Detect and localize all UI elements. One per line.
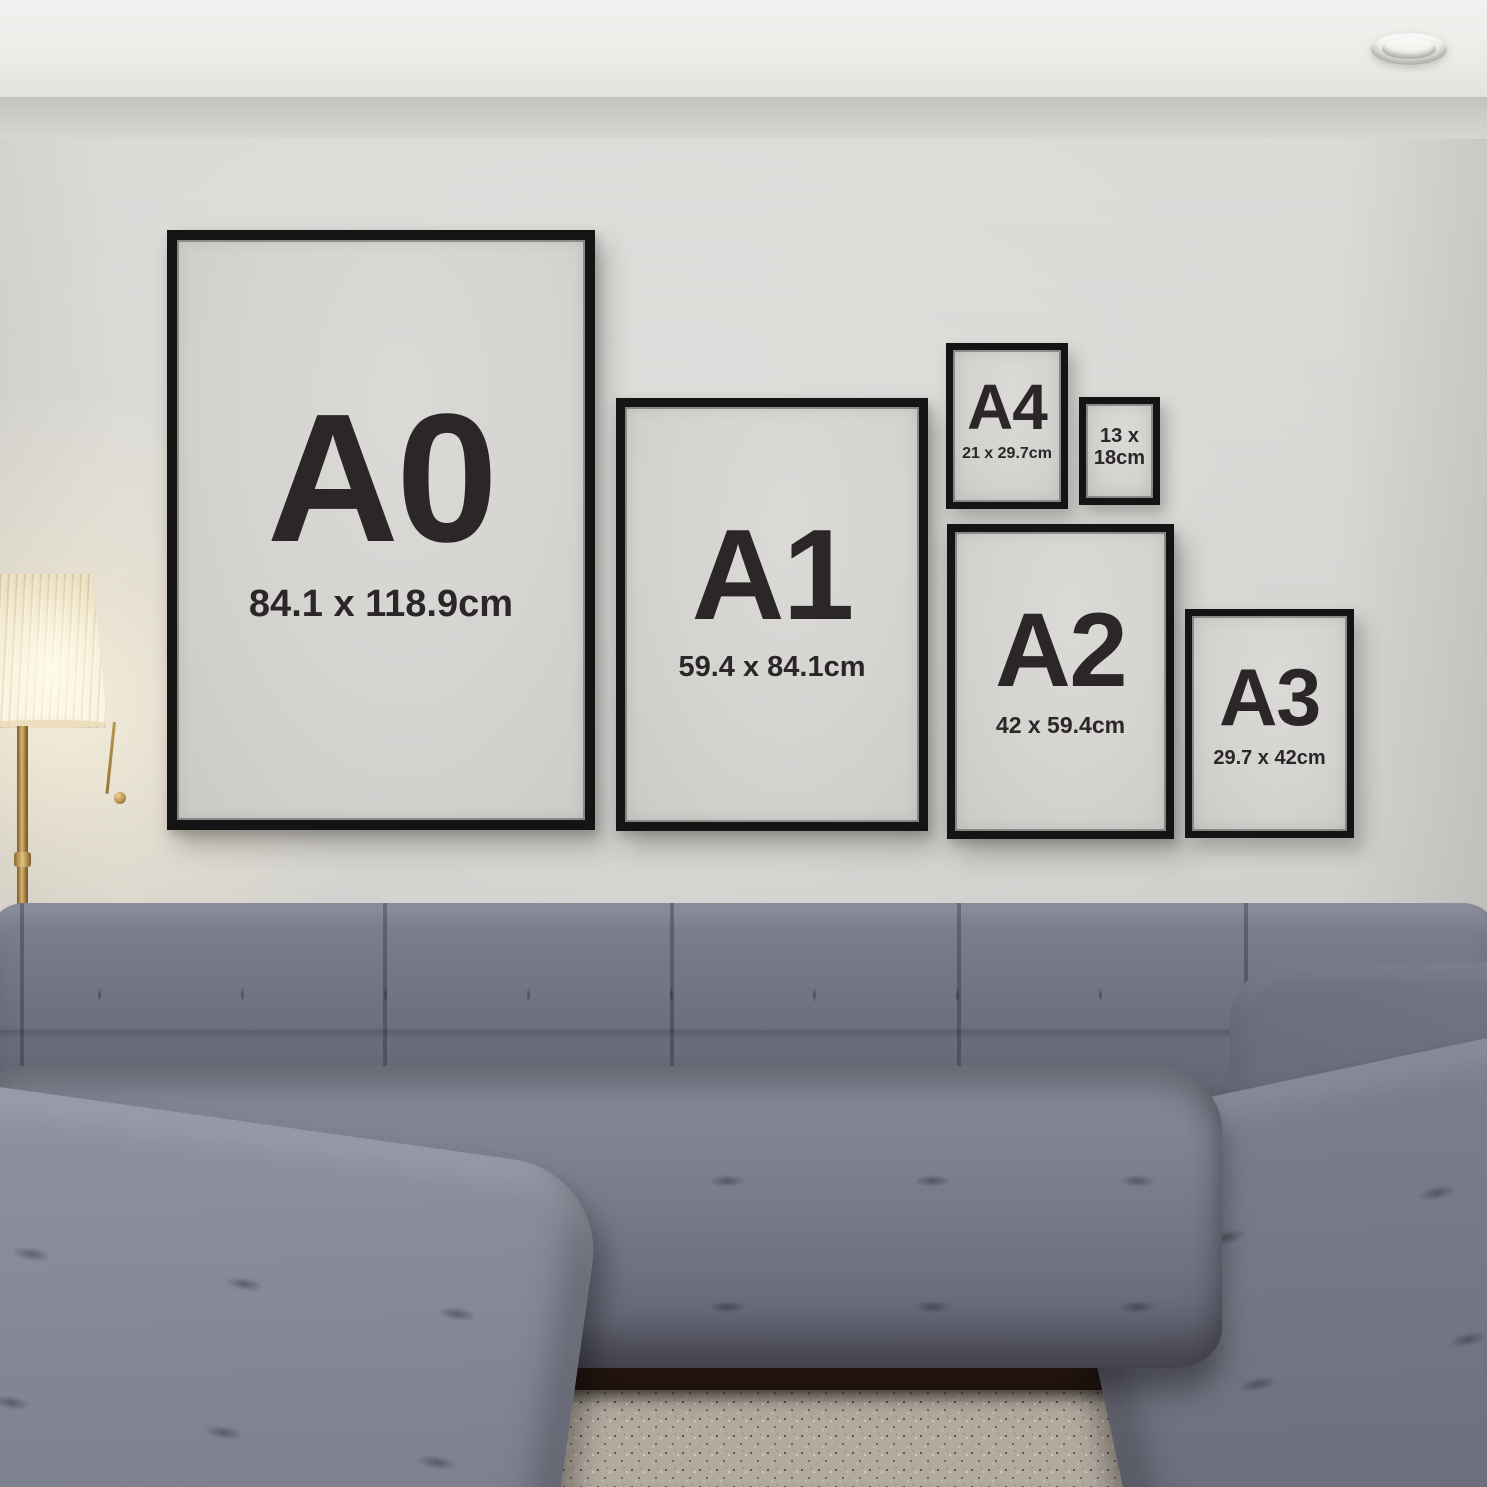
frame-a1: A1 59.4 x 84.1cm: [616, 398, 928, 831]
poster-size-label: A3: [1219, 660, 1320, 738]
poster-size-label: A2: [995, 601, 1126, 702]
frame-a4: A4 21 x 29.7cm: [946, 343, 1068, 509]
frame-a0: A0 84.1 x 118.9cm: [167, 230, 595, 830]
recessed-ceiling-light: [1371, 33, 1447, 65]
poster-13x18: 13 x 18cm: [1086, 404, 1153, 498]
poster-a1: A1 59.4 x 84.1cm: [625, 407, 919, 822]
poster-size-label: A0: [267, 390, 495, 566]
wall-ceiling-junction: [0, 97, 1487, 139]
lamp-pull-chain-ball: [114, 792, 126, 804]
poster-dimensions: 42 x 59.4cm: [996, 713, 1125, 739]
poster-size-label: A4: [967, 377, 1047, 438]
poster-size-label: A1: [691, 514, 852, 638]
frame-a2: A2 42 x 59.4cm: [947, 524, 1174, 839]
frame-13x18: 13 x 18cm: [1079, 397, 1160, 505]
poster-a3: A3 29.7 x 42cm: [1192, 616, 1347, 831]
poster-dimensions: 13 x: [1100, 425, 1139, 447]
lamp-pole-joint: [14, 852, 31, 867]
lamp-shade: [0, 574, 108, 728]
poster-a0: A0 84.1 x 118.9cm: [177, 240, 585, 820]
lamp-pole: [17, 726, 28, 916]
poster-dimensions: 59.4 x 84.1cm: [678, 651, 865, 683]
poster-a2: A2 42 x 59.4cm: [955, 532, 1166, 831]
frame-a3: A3 29.7 x 42cm: [1185, 609, 1354, 838]
poster-a4: A4 21 x 29.7cm: [953, 350, 1061, 502]
poster-dimensions: 84.1 x 118.9cm: [249, 583, 513, 626]
poster-dimensions: 21 x 29.7cm: [962, 445, 1052, 463]
ceiling: [0, 0, 1487, 97]
poster-dimensions: 18cm: [1094, 447, 1145, 469]
poster-dimensions: 29.7 x 42cm: [1213, 747, 1325, 769]
living-room-scene: A0 84.1 x 118.9cm A1 59.4 x 84.1cm A4 21…: [0, 0, 1487, 1487]
